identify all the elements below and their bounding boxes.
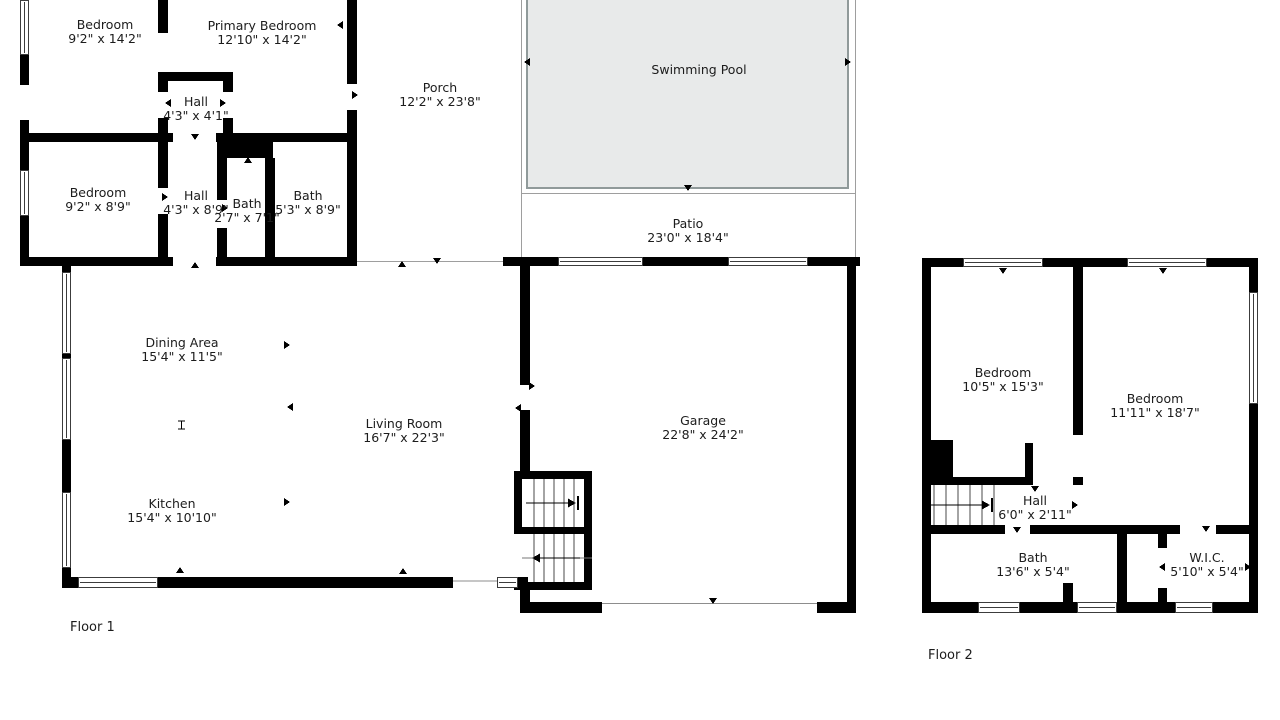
room-dims: 4'3" x 4'1" xyxy=(163,109,229,123)
room-name: Living Room xyxy=(363,417,444,431)
room-label-bath-f2: Bath 13'6" x 5'4" xyxy=(996,551,1069,579)
room-name: Bedroom xyxy=(65,186,131,200)
room-label-hall-f2: Hall 6'0" x 2'11" xyxy=(998,494,1071,522)
room-name: Patio xyxy=(647,217,728,231)
room-label-garage: Garage 22'8" x 24'2" xyxy=(662,414,743,442)
room-label-bedroom-mid: Bedroom 9'2" x 8'9" xyxy=(65,186,131,214)
room-name: Bedroom xyxy=(1110,392,1199,406)
room-label-living-room: Living Room 16'7" x 22'3" xyxy=(363,417,444,445)
section-marker xyxy=(178,421,185,429)
room-dims: 10'5" x 15'3" xyxy=(962,380,1043,394)
room-label-kitchen: Kitchen 15'4" x 10'10" xyxy=(127,497,216,525)
room-name: Bath xyxy=(214,197,280,211)
room-label-primary-bedroom: Primary Bedroom 12'10" x 14'2" xyxy=(208,19,317,47)
room-label-bedroom-right-f2: Bedroom 11'11" x 18'7" xyxy=(1110,392,1199,420)
room-name: Hall xyxy=(163,95,229,109)
room-dims: 13'6" x 5'4" xyxy=(996,565,1069,579)
room-dims: 15'4" x 10'10" xyxy=(127,511,216,525)
floor-plan-page: Bedroom 9'2" x 14'2" Primary Bedroom 12'… xyxy=(0,0,1280,720)
room-label-hall-upper: Hall 4'3" x 4'1" xyxy=(163,95,229,123)
floor2-label: Floor 2 xyxy=(928,648,973,663)
room-dims: 15'4" x 11'5" xyxy=(141,350,222,364)
room-dims: 11'11" x 18'7" xyxy=(1110,406,1199,420)
room-name: W.I.C. xyxy=(1170,551,1243,565)
room-dims: 12'2" x 23'8" xyxy=(399,95,480,109)
room-label-bath-large: Bath 5'3" x 8'9" xyxy=(275,189,341,217)
room-name: Swimming Pool xyxy=(651,63,746,77)
floor1-label: Floor 1 xyxy=(70,620,115,635)
room-dims: 23'0" x 18'4" xyxy=(647,231,728,245)
room-label-swimming-pool: Swimming Pool xyxy=(651,63,746,77)
room-dims: 16'7" x 22'3" xyxy=(363,431,444,445)
room-dims: 5'10" x 5'4" xyxy=(1170,565,1243,579)
room-dims: 9'2" x 8'9" xyxy=(65,200,131,214)
room-label-porch: Porch 12'2" x 23'8" xyxy=(399,81,480,109)
room-dims: 12'10" x 14'2" xyxy=(208,33,317,47)
room-dims: 22'8" x 24'2" xyxy=(662,428,743,442)
room-label-bedroom-top: Bedroom 9'2" x 14'2" xyxy=(68,18,141,46)
room-name: Porch xyxy=(399,81,480,95)
room-dims: 2'7" x 7'1" xyxy=(214,211,280,225)
room-label-dining-area: Dining Area 15'4" x 11'5" xyxy=(141,336,222,364)
room-name: Dining Area xyxy=(141,336,222,350)
room-name: Hall xyxy=(998,494,1071,508)
room-name: Bedroom xyxy=(68,18,141,32)
room-label-wic-f2: W.I.C. 5'10" x 5'4" xyxy=(1170,551,1243,579)
room-dims: 5'3" x 8'9" xyxy=(275,203,341,217)
swimming-pool-water xyxy=(527,0,848,188)
room-name: Garage xyxy=(662,414,743,428)
room-label-bedroom-left-f2: Bedroom 10'5" x 15'3" xyxy=(962,366,1043,394)
room-label-bath-small: Bath 2'7" x 7'1" xyxy=(214,197,280,225)
room-name: Bath xyxy=(996,551,1069,565)
room-dims: 9'2" x 14'2" xyxy=(68,32,141,46)
room-label-patio: Patio 23'0" x 18'4" xyxy=(647,217,728,245)
room-dims: 6'0" x 2'11" xyxy=(998,508,1071,522)
room-name: Primary Bedroom xyxy=(208,19,317,33)
room-name: Bath xyxy=(275,189,341,203)
room-name: Bedroom xyxy=(962,366,1043,380)
room-name: Kitchen xyxy=(127,497,216,511)
pool-patio-area xyxy=(357,0,856,262)
